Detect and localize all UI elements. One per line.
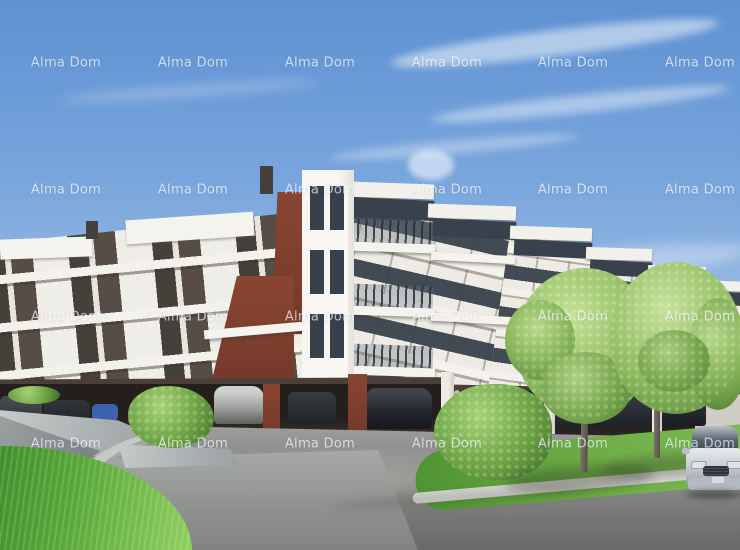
tower-windows bbox=[310, 186, 348, 378]
chimney bbox=[86, 221, 98, 239]
parked-car bbox=[288, 392, 336, 424]
window-band bbox=[352, 197, 435, 221]
parked-car bbox=[366, 388, 432, 429]
car-plate bbox=[712, 477, 724, 483]
car-shadow bbox=[686, 490, 740, 499]
bush-texture bbox=[128, 386, 214, 448]
bush-texture bbox=[434, 384, 552, 480]
rust-pillar bbox=[263, 384, 280, 434]
property-listing-photo: Alma DomAlma DomAlma DomAlma DomAlma Dom… bbox=[0, 0, 740, 550]
car-mirror bbox=[682, 448, 690, 454]
covered-car bbox=[92, 404, 118, 421]
shrub bbox=[8, 386, 60, 404]
cloud bbox=[408, 150, 454, 180]
roof-box bbox=[0, 236, 92, 259]
chimney bbox=[260, 166, 273, 194]
parked-suv-silver bbox=[214, 386, 264, 424]
tree-canopy-texture bbox=[610, 262, 740, 414]
rust-pillar bbox=[348, 374, 367, 432]
car-grille bbox=[703, 466, 729, 476]
